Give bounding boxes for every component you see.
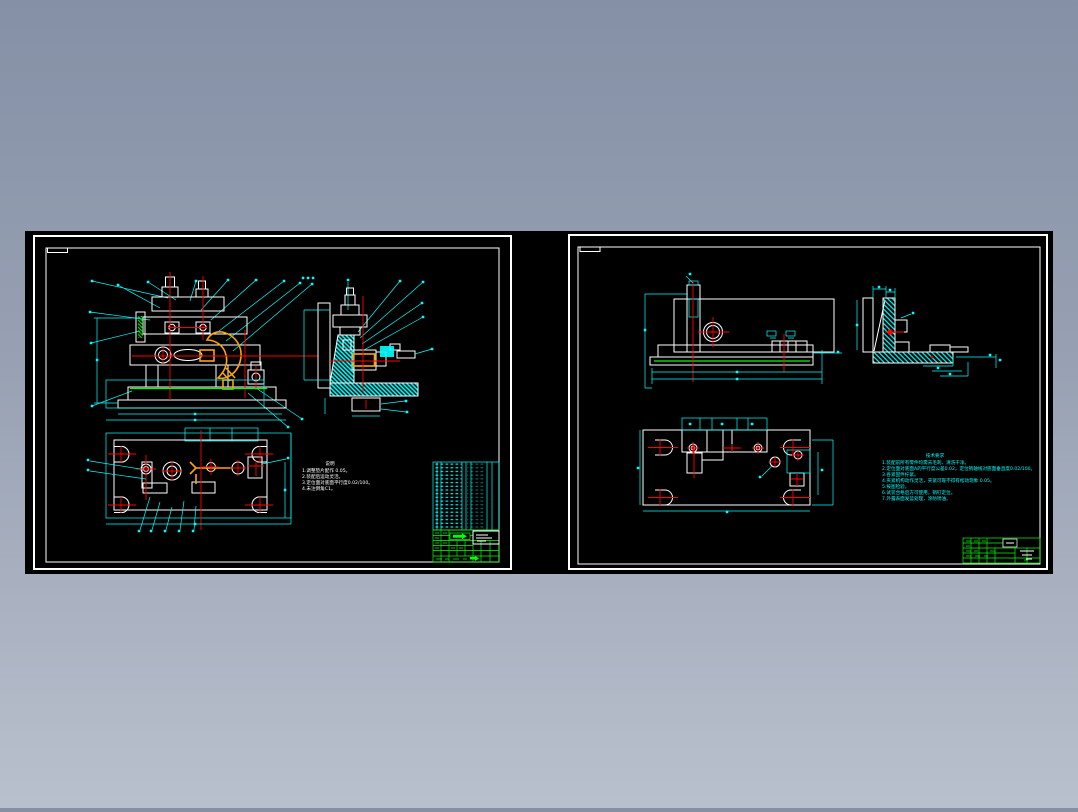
right-notes-line: 5.按图检验。	[882, 483, 909, 490]
workspace-background	[25, 231, 1053, 574]
left-notes-line: 3.定位面对底面平行度0.02/100。	[302, 479, 373, 486]
left-notes-line: 1.调整垫片配作 0.05。	[302, 467, 350, 474]
right-notes-line: 4.夹紧机构动作灵活，夹紧可靠不得有松动现象 0.05。	[882, 477, 995, 484]
right-notes-line: 6.试装合格后方可使用，销钉定位。	[882, 489, 955, 496]
right-notes-line: 2.定位面对底面A的平行度公差0.02，定位销轴线对底面垂直度0.02/100。	[882, 465, 1035, 472]
right-notes-line: 3.各紧固件拧紧。	[882, 471, 919, 478]
left-notes-line: 2.装配后运动灵活。	[302, 473, 343, 480]
cad-preview-canvas: 说明 1.调整垫片配作 0.05。 2.装配后运动灵活。 3.定位面对底面平行度…	[0, 0, 1078, 808]
cad-preview-stage: 说明 1.调整垫片配作 0.05。 2.装配后运动灵活。 3.定位面对底面平行度…	[0, 0, 1078, 808]
right-notes-line: 7.外露表面发蓝处理，涂防锈油。	[882, 495, 951, 502]
right-notes-title: 技术要求	[926, 452, 945, 459]
left-notes-title: 说明	[325, 460, 335, 467]
right-notes-line: 1.装配前所有零件均需去毛刺、清洗干净。	[882, 459, 969, 466]
left-notes-line: 4.未注倒角C1。	[302, 485, 335, 492]
